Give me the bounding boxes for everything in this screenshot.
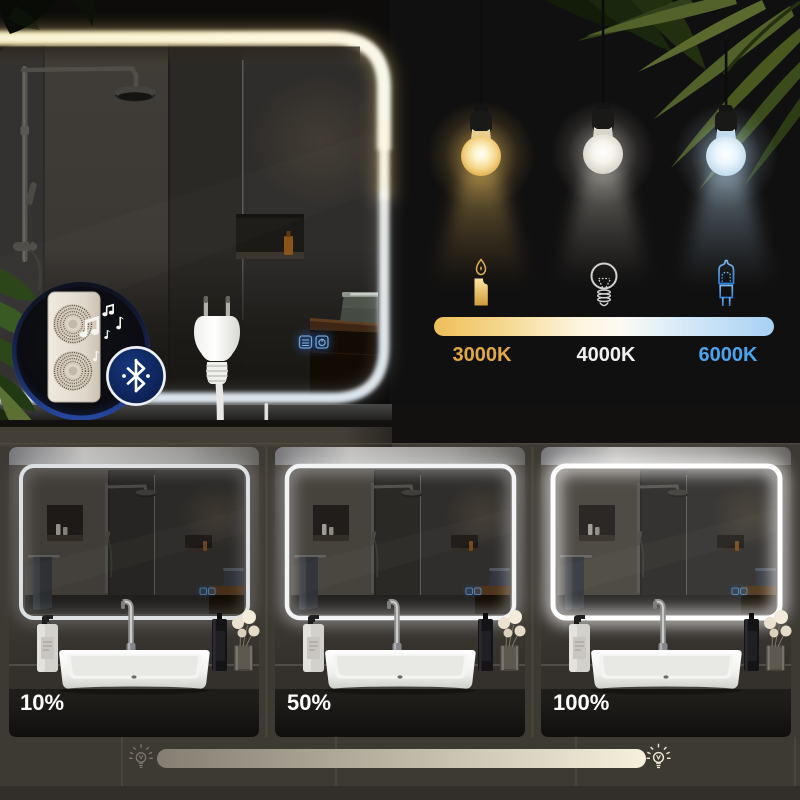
svg-text:3000K: 3000K (453, 344, 512, 366)
svg-text:10%: 10% (20, 690, 64, 715)
svg-text:50%: 50% (287, 690, 331, 715)
svg-text:100%: 100% (553, 690, 609, 715)
svg-text:4000K: 4000K (577, 344, 636, 366)
svg-text:6000K: 6000K (699, 344, 758, 366)
